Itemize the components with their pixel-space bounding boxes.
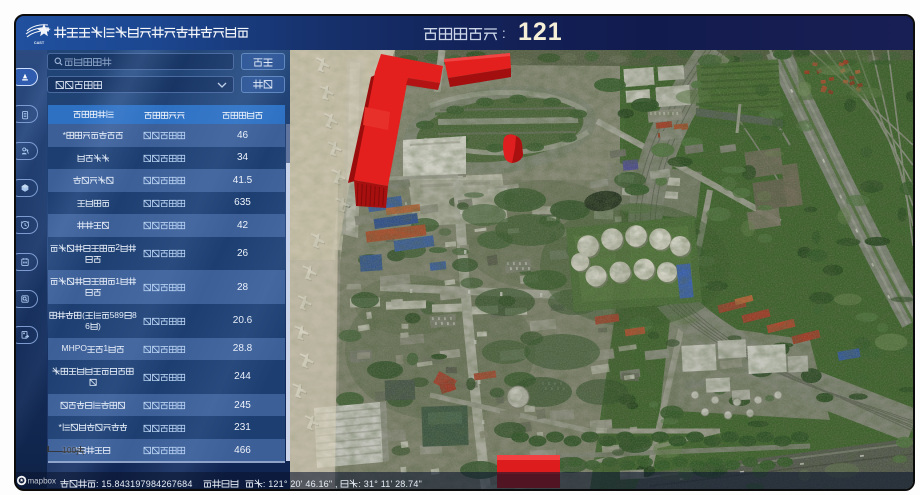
- svg-text:CAST: CAST: [34, 41, 45, 45]
- svg-text:mapbox: mapbox: [28, 477, 56, 486]
